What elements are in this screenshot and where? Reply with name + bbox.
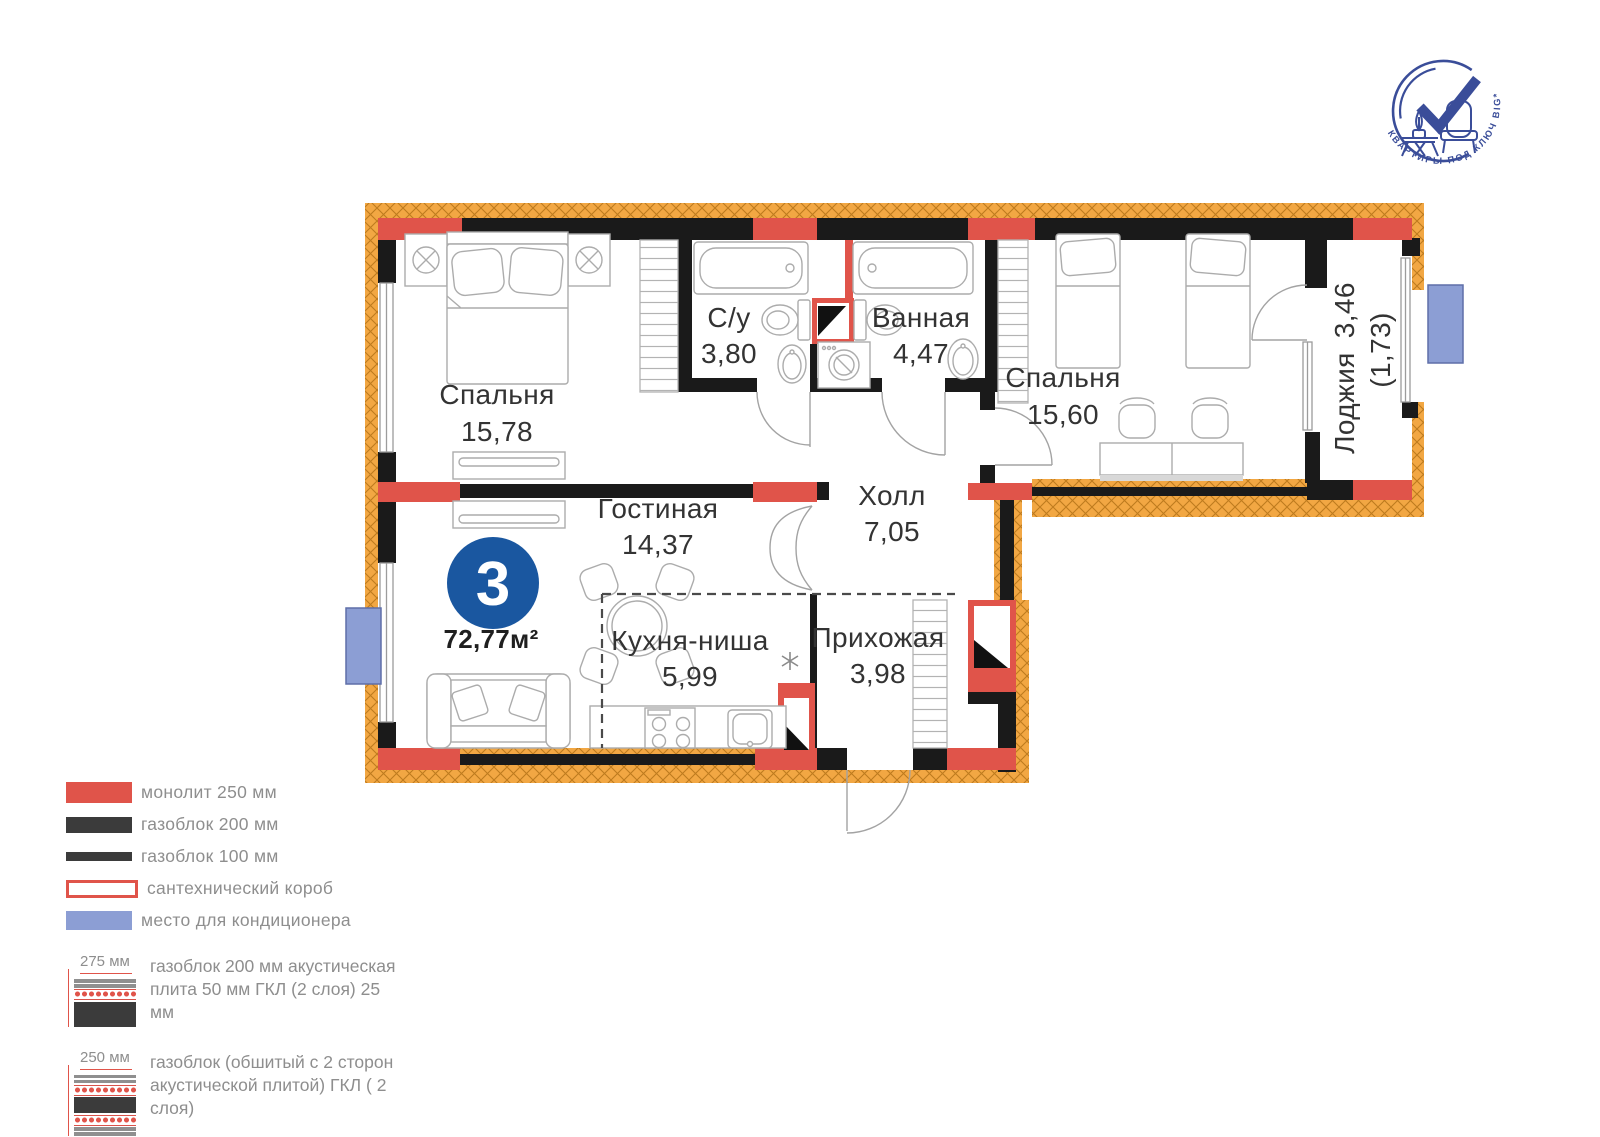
sink-icon <box>778 345 806 383</box>
window-bedroom-2-loggia <box>1303 342 1312 430</box>
door-loggia <box>1252 285 1307 340</box>
svg-text:3: 3 <box>476 550 510 619</box>
legend-item-plumbing-box: сантехнический короб <box>66 878 496 899</box>
bathtub-icon <box>853 242 973 294</box>
room-label-living: Гостиная <box>598 493 719 524</box>
desk-chair-icon <box>1192 398 1228 438</box>
room-label-bedroom-1: Спальня <box>439 379 554 410</box>
room-label-hall: Холл <box>858 480 926 511</box>
ac-unit-loggia <box>1428 285 1463 363</box>
bathtub-icon <box>694 242 808 294</box>
room-label-wc: С/у <box>707 302 750 333</box>
gasblock-200-swatch <box>66 817 132 833</box>
ac-place-swatch <box>66 911 132 930</box>
fridge-place-icon <box>782 652 798 670</box>
svg-text:4,47: 4,47 <box>893 338 949 369</box>
assembly-label: газоблок (обшитый с 2 сторон акустическо… <box>150 1051 408 1120</box>
legend-item-gasblock-200: газоблок 200 мм <box>66 814 496 835</box>
room-label-bedroom-2: Спальня <box>1005 362 1120 393</box>
stove-icon <box>645 708 695 748</box>
toilet-icon <box>762 300 810 340</box>
legend-label: место для кондиционера <box>141 910 351 931</box>
svg-text:14,37: 14,37 <box>622 529 694 560</box>
svg-text:3,80: 3,80 <box>701 338 757 369</box>
legend: монолит 250 мм газоблок 200 мм газоблок … <box>66 782 496 1137</box>
room-label-loggia: Лоджия3,46 <box>1329 282 1360 454</box>
assembly-dimension: 275 мм <box>80 953 132 974</box>
svg-text:5,99: 5,99 <box>662 661 718 692</box>
svg-text:7,05: 7,05 <box>864 516 920 547</box>
svg-text:15,60: 15,60 <box>1027 399 1099 430</box>
washing-machine-icon <box>818 342 870 388</box>
legend-assembly-275: 275 мм газоблок 200 мм акустическая плит… <box>66 953 496 1027</box>
window-loggia-glazing <box>1401 258 1410 402</box>
monolith-swatch <box>66 782 132 803</box>
room-label-kitchen: Кухня-ниша <box>611 625 768 656</box>
plumbing-box-swatch <box>66 880 138 898</box>
developer-logo: КВАРТИРЫ ПОД КЛЮЧ BIG* <box>1368 38 1518 198</box>
gasblock-100-swatch <box>66 852 132 861</box>
sink-icon <box>948 339 978 379</box>
legend-item-monolith: монолит 250 мм <box>66 782 496 803</box>
ac-unit-living <box>346 608 381 684</box>
legend-item-ac-place: место для кондиционера <box>66 910 496 931</box>
bed-double-icon <box>405 232 610 384</box>
assembly-swatch-250 <box>74 1075 136 1136</box>
legend-label: газоблок 100 мм <box>141 846 279 867</box>
window-bedroom-1 <box>380 283 393 452</box>
legend-assembly-250: 250 мм газоблок (обшитый с 2 сторон акус… <box>66 1049 496 1137</box>
door-wc <box>757 392 810 447</box>
room-label-loggia-reduced: (1,73) <box>1365 312 1396 388</box>
legend-label: монолит 250 мм <box>141 782 277 803</box>
svg-text:3,98: 3,98 <box>850 658 906 689</box>
legend-item-gasblock-100: газоблок 100 мм <box>66 846 496 867</box>
kitchen-sink-icon <box>728 710 772 748</box>
room-label-bathroom: Ванная <box>872 302 970 333</box>
assembly-dimension: 250 мм <box>80 1049 132 1070</box>
total-area-label: 72,77м² <box>443 624 538 654</box>
wardrobe-icon <box>640 240 678 392</box>
sanitary-box-bathroom <box>812 298 854 344</box>
window-living-room <box>380 563 393 722</box>
assembly-label: газоблок 200 мм акустическая плита 50 мм… <box>150 955 408 1024</box>
rooms-badge: 3 72,77м² <box>443 537 539 654</box>
door-bathroom <box>882 392 945 455</box>
desk-icon <box>1100 443 1243 481</box>
desk-chair-icon <box>1119 398 1155 438</box>
assembly-swatch-275 <box>74 979 136 1027</box>
room-label-entry: Прихожая <box>812 622 945 653</box>
door-kitchen <box>770 506 812 590</box>
bed-single-icon <box>1186 234 1250 368</box>
sanitary-box-hall <box>968 600 1016 692</box>
legend-label: сантехнический короб <box>147 878 333 899</box>
bed-single-icon <box>1056 234 1120 368</box>
svg-text:15,78: 15,78 <box>461 416 533 447</box>
legend-label: газоблок 200 мм <box>141 814 279 835</box>
sofa-icon <box>427 674 570 748</box>
